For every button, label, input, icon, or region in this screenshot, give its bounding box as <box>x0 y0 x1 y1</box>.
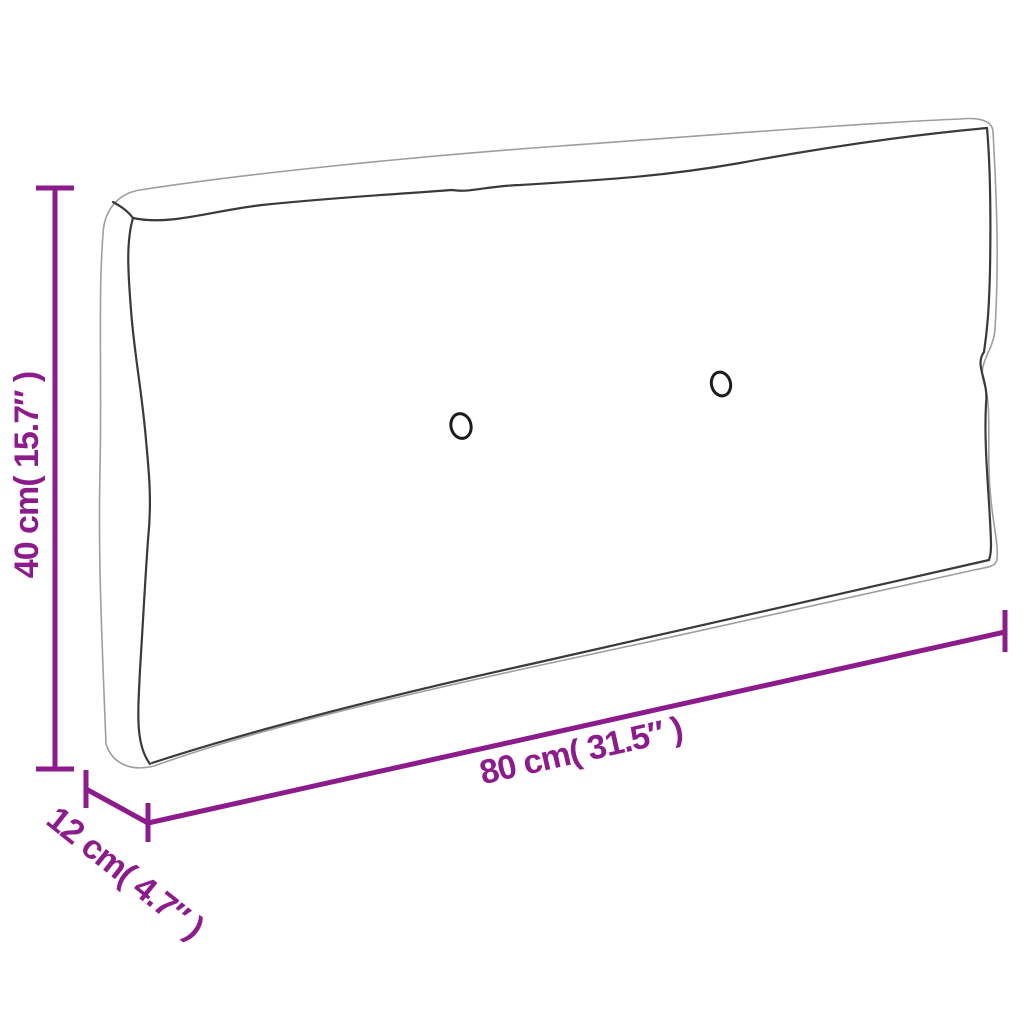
product-dimension-diagram: 40 cm( 15.7″ ) 12 cm( 4.7″ ) 80 cm( 31.5… <box>0 0 1024 1024</box>
cushion-illustration <box>99 119 997 768</box>
depth-dimension-line <box>86 789 148 823</box>
depth-dimension-label: 12 cm( 4.7″ ) <box>39 799 210 946</box>
cushion-outline <box>99 119 997 768</box>
height-dimension-label: 40 cm( 15.7″ ) <box>8 372 46 578</box>
width-dimension-label: 80 cm( 31.5″ ) <box>476 710 686 792</box>
diagram-canvas: 40 cm( 15.7″ ) 12 cm( 4.7″ ) 80 cm( 31.5… <box>0 0 1024 1024</box>
